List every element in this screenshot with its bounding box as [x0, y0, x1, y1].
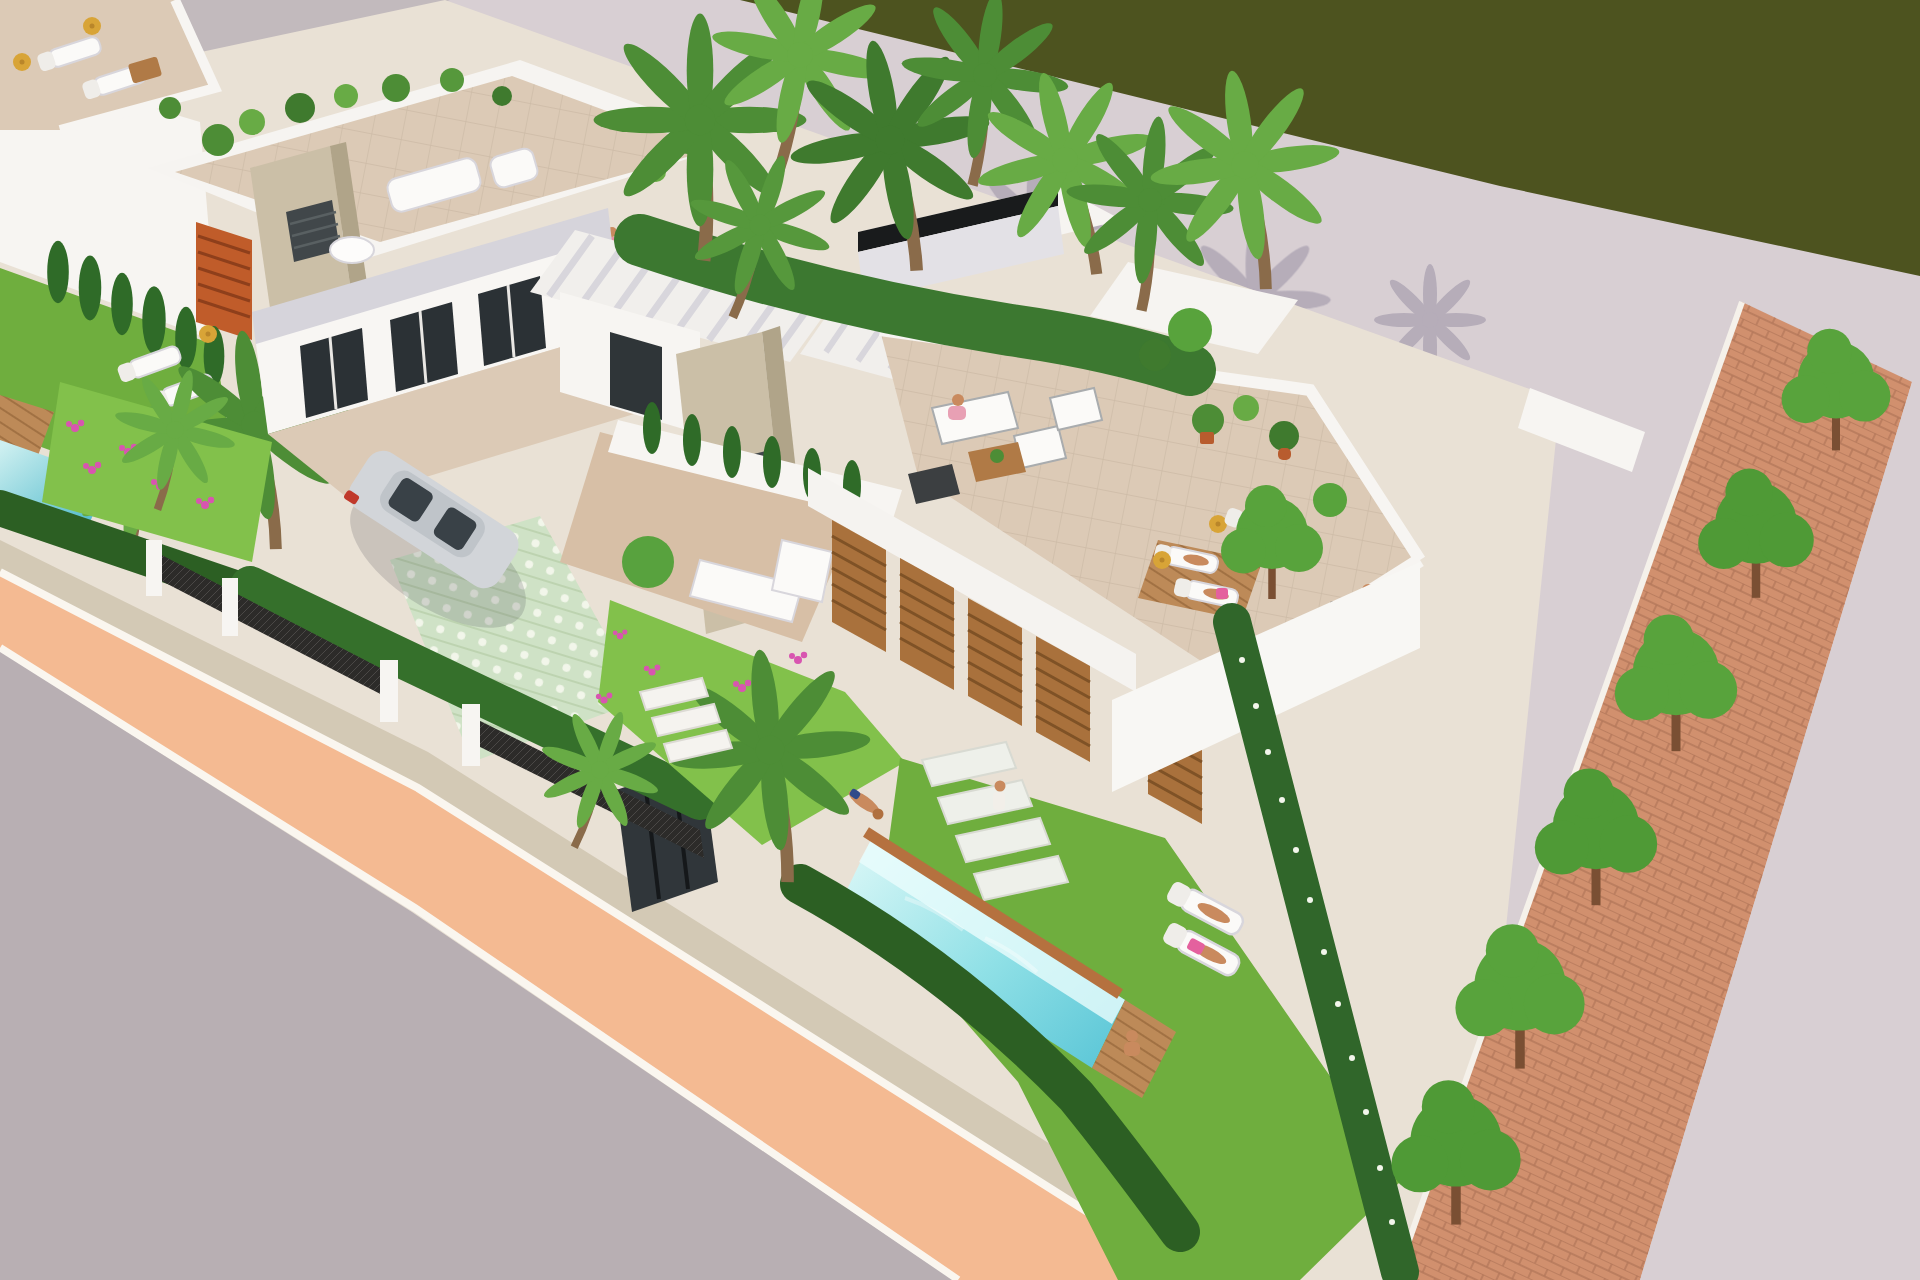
cypress: [79, 256, 102, 321]
cypress: [111, 273, 133, 335]
person-body: [1124, 1042, 1140, 1056]
cypress: [142, 286, 165, 354]
parasol: [1209, 515, 1227, 533]
potted-plant: [1313, 483, 1347, 517]
parasol: [199, 325, 217, 343]
villa-render: [0, 0, 1920, 1280]
plant: [440, 68, 464, 92]
bush: [1168, 308, 1212, 352]
potted-palm: [1233, 395, 1259, 421]
vase: [1278, 448, 1291, 460]
bush: [1139, 339, 1171, 371]
cypress: [723, 426, 741, 478]
potted-palm: [1269, 421, 1299, 451]
child-body: [993, 792, 1005, 810]
parasol: [83, 17, 101, 35]
gate-pillar: [222, 578, 238, 636]
l-sofa-corner: [772, 540, 832, 602]
plant: [334, 84, 358, 108]
cypress: [683, 414, 701, 466]
person-head: [952, 394, 964, 406]
gate-pillar: [380, 660, 398, 722]
orange-louver-panel: [196, 222, 252, 340]
gate-pillar: [462, 704, 480, 766]
plant: [492, 86, 512, 106]
person-sitting-pool: [1126, 1030, 1138, 1042]
potted-palm: [1192, 404, 1224, 436]
render-canvas: [0, 0, 1920, 1280]
parasol: [13, 53, 31, 71]
child-head: [995, 781, 1006, 792]
potted-plant: [159, 97, 181, 119]
cypress: [643, 402, 661, 454]
person-body: [948, 406, 966, 420]
parasol: [1153, 551, 1171, 569]
planter-pot: [1200, 432, 1214, 444]
plant: [285, 93, 315, 123]
towel: [1216, 588, 1228, 599]
cypress: [763, 436, 781, 488]
gate-pillar: [146, 540, 162, 596]
table-plant: [990, 449, 1004, 463]
plant: [382, 74, 410, 102]
leaf-plant: [622, 536, 674, 588]
round-table: [330, 237, 374, 263]
plant: [239, 109, 265, 135]
cypress: [47, 241, 69, 303]
plant: [202, 124, 234, 156]
